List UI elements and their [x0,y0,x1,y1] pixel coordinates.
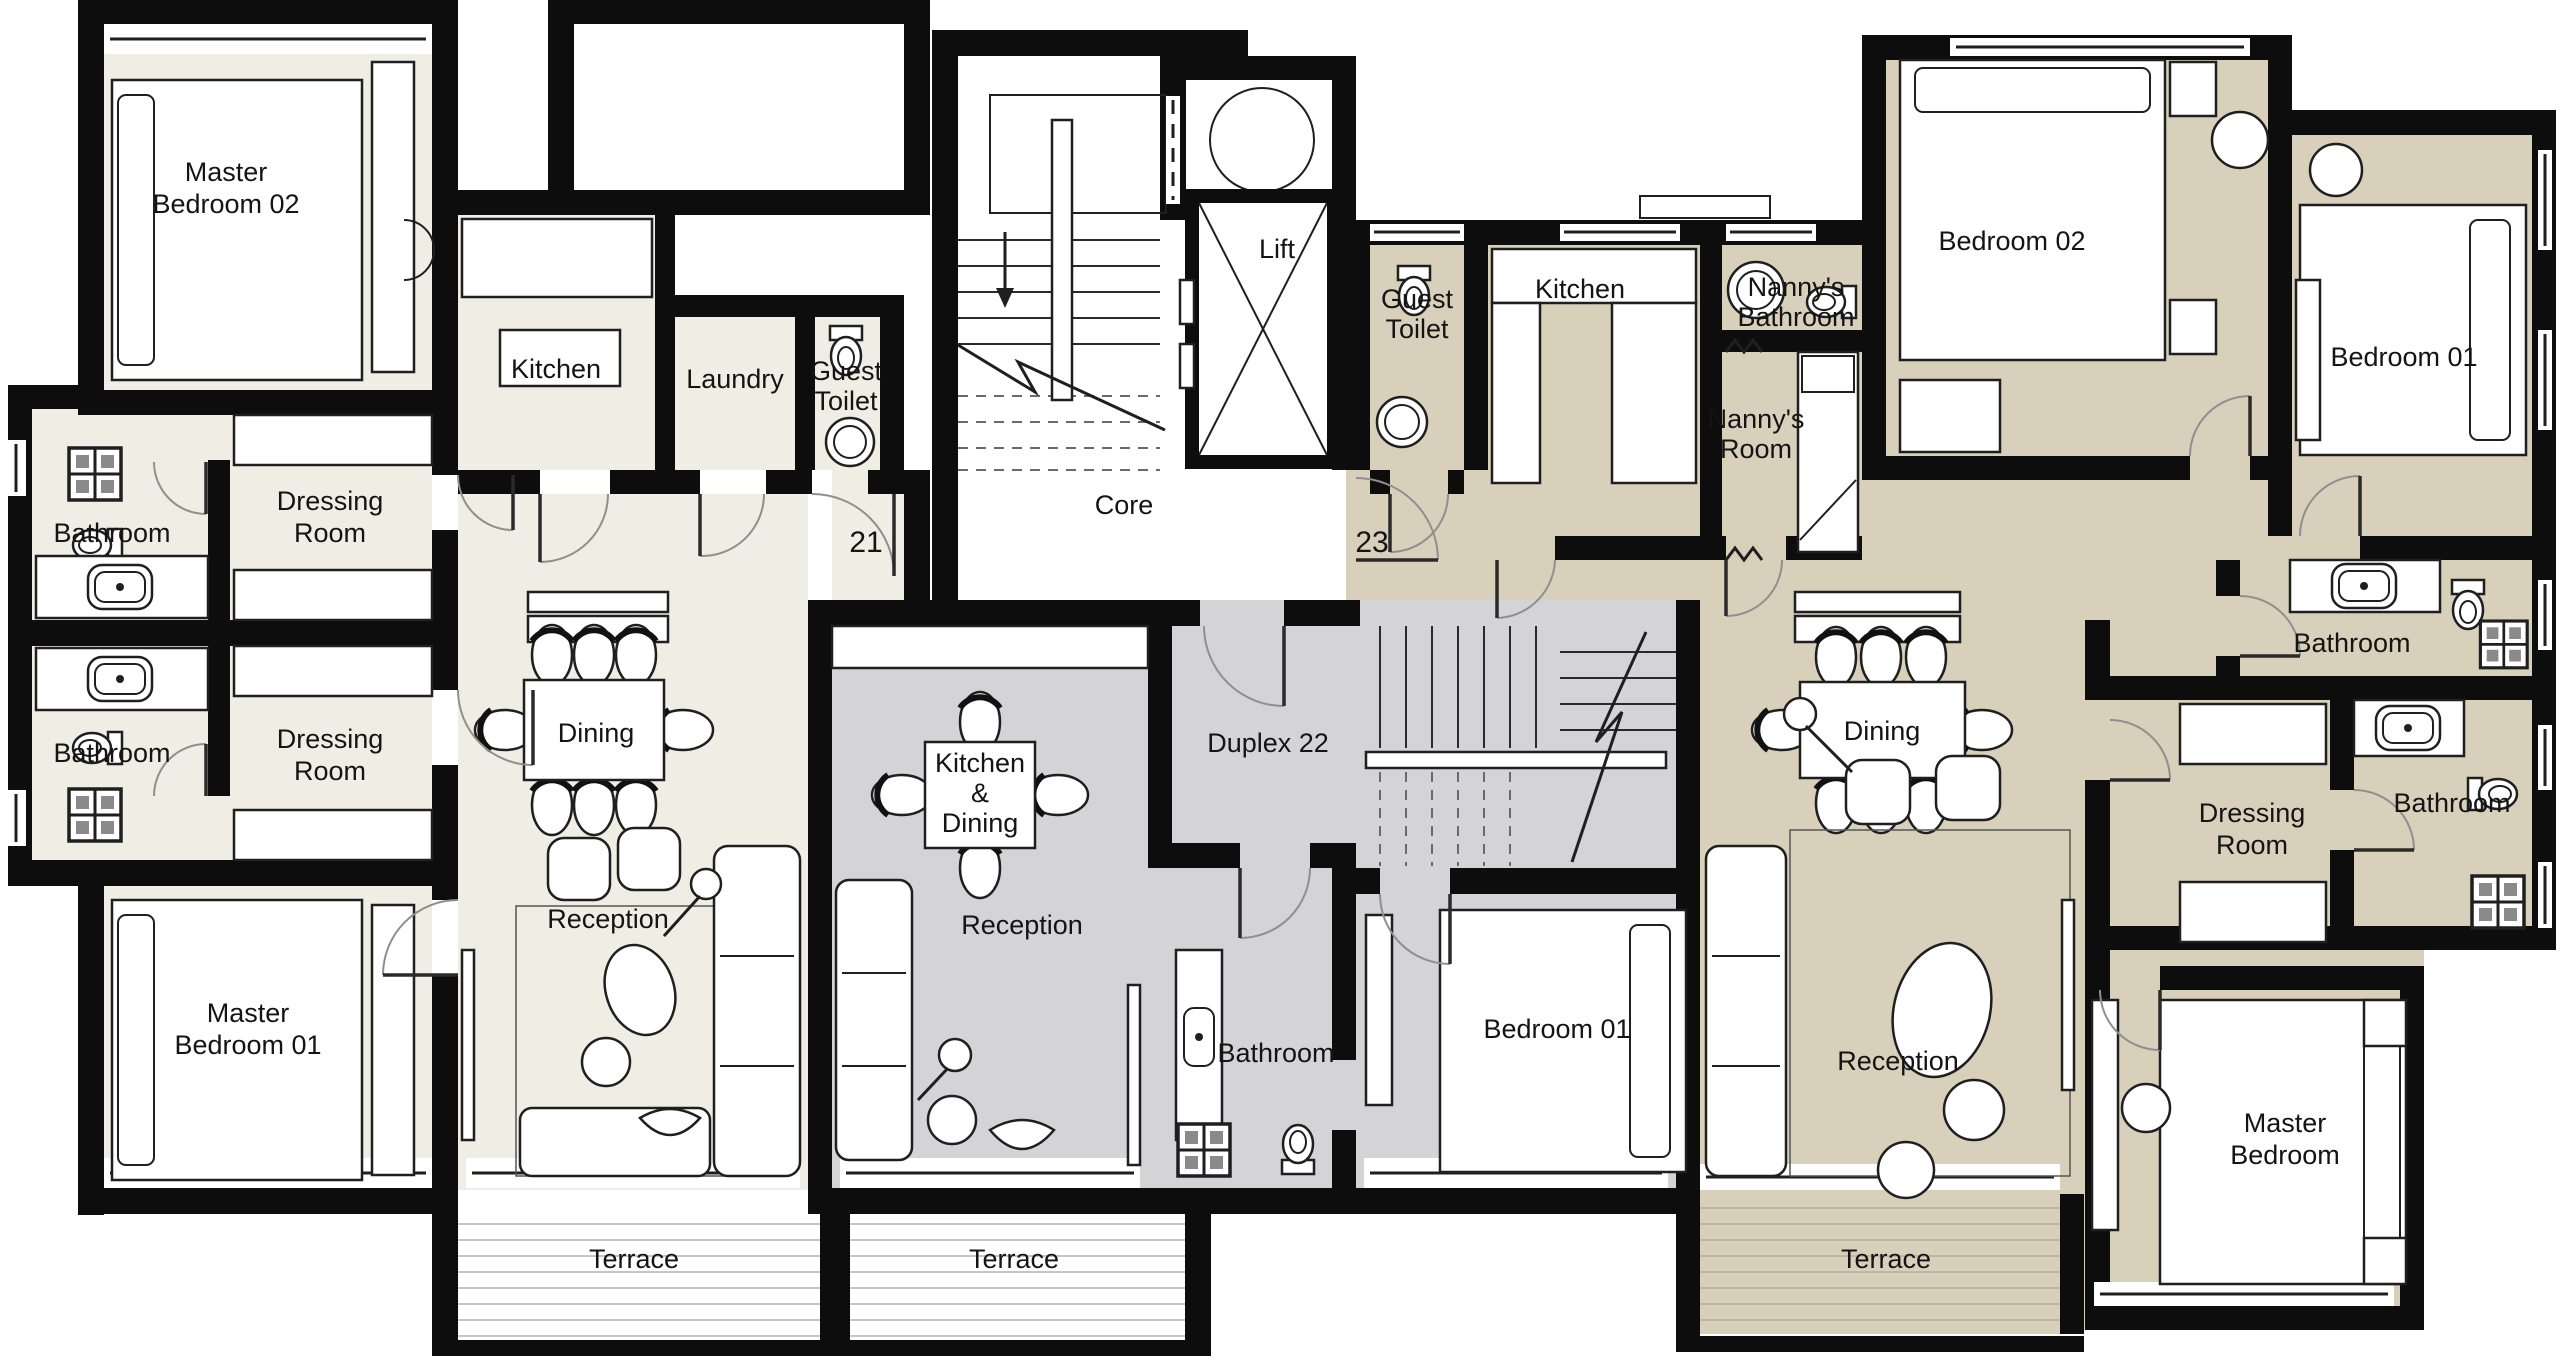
window-strip [2538,862,2552,928]
label-kitchen-dining-u22: Kitchen [935,748,1025,778]
label-terrace-3: Terrace [1841,1244,1931,1274]
window-strip [2538,330,2552,430]
label-nannys-bathroom: Nanny's [1748,272,1845,302]
label-dining-u23: Dining [1844,716,1921,746]
label-bathroom-u22: Bathroom [1217,1038,1334,1068]
label-bathroom-u21-upper: Bathroom [53,518,170,548]
label-bedroom-02-u23: Bedroom 02 [1938,226,2085,256]
label-duplex-22: Duplex 22 [1207,728,1329,758]
label-guest-toilet-u21: Toilet [814,386,878,416]
label-laundry: Laundry [686,364,784,394]
window-strip [1950,38,2250,56]
label-dressing-u23: Dressing [2199,798,2306,828]
label-master-bedroom-02: Master [185,157,268,187]
label-dining-u21: Dining [558,718,635,748]
label-nannys-bathroom: Bathroom [1737,302,1854,332]
window-strip [840,1158,1140,1188]
label-master-bedroom-02: Bedroom 02 [152,189,299,219]
label-dressing-u23: Room [2216,830,2288,860]
label-lift: Lift [1259,234,1296,264]
window-strip [2538,725,2552,790]
window-strip [1726,224,1816,241]
window-strip [104,24,432,54]
window-strip [2538,150,2552,250]
label-guest-toilet-u21: Guest [810,356,883,386]
label-bathroom-u21-lower: Bathroom [53,738,170,768]
wardrobe [234,810,432,860]
window-strip [1560,224,1680,241]
lift [1180,196,1334,462]
label-kitchen-u23: Kitchen [1535,274,1625,304]
label-bedroom-01-u22: Bedroom 01 [1483,1014,1630,1044]
service-shaft [1166,88,1314,204]
label-nannys-room: Nanny's [1708,404,1805,434]
window-strip [2094,1282,2394,1306]
label-dressing-lower: Room [294,756,366,786]
core-stair [958,88,1334,470]
label-kitchen-dining-u22: Dining [942,808,1019,838]
window-strip [6,790,26,846]
terrace-1-floor [458,1214,820,1338]
label-reception-u21: Reception [547,904,669,934]
label-master-bedroom-01: Master [207,998,290,1028]
label-master-bedroom-u23: Master [2244,1108,2327,1138]
label-master-bedroom-01: Bedroom 01 [174,1030,321,1060]
label-core: Core [1095,490,1154,520]
wardrobe [234,570,432,620]
label-kitchen-dining-u22: & [971,778,989,808]
label-bathroom-ensuite: Bathroom [2293,628,2410,658]
label-master-bedroom-u23: Bedroom [2230,1140,2340,1170]
label-bathroom-u23: Bathroom [2393,788,2510,818]
label-nannys-room: Room [1720,434,1792,464]
label-unit-21: 21 [849,526,882,559]
label-terrace-2: Terrace [969,1244,1059,1274]
wardrobe [234,415,432,465]
label-kitchen-u21: Kitchen [511,354,601,384]
wardrobe [234,646,432,696]
label-dressing-lower: Dressing [277,724,384,754]
bed-master-02 [112,62,434,380]
label-guest-toilet-u23: Guest [1381,284,1454,314]
label-dressing-upper: Dressing [277,486,384,516]
wardrobe [2180,882,2326,942]
floor-plan: Master Bedroom 02 Bathroom Dressing Room… [0,0,2560,1365]
window-strip [2538,580,2552,650]
label-guest-toilet-u23: Toilet [1385,314,1449,344]
label-reception-u23: Reception [1837,1046,1959,1076]
label-bedroom-01-u23: Bedroom 01 [2330,342,2477,372]
window-strip [1370,224,1464,241]
bed-nanny [1798,352,1858,552]
terrace-2-floor [850,1214,1185,1338]
label-terrace-1: Terrace [589,1244,679,1274]
label-dressing-upper: Room [294,518,366,548]
window-strip [6,440,26,496]
label-reception-u22: Reception [961,910,1083,940]
wardrobe [2180,704,2326,764]
label-unit-23: 23 [1355,526,1388,559]
